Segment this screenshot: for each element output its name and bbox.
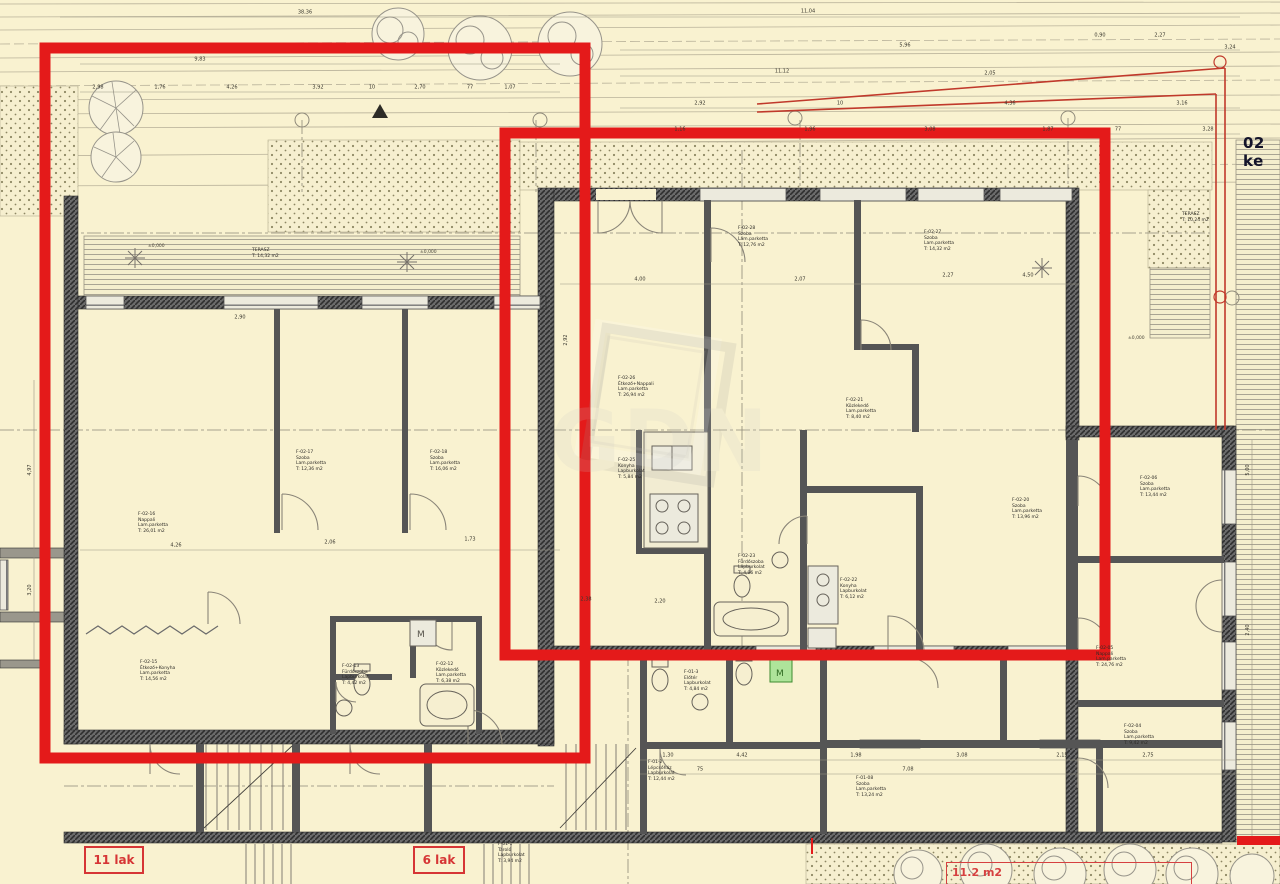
watermark: GDN: [546, 330, 806, 500]
insulation-zigzag: [86, 626, 218, 634]
unit-label-6-lak: 6 lak: [413, 846, 465, 874]
unit-label-11-lak: 11 lak: [84, 846, 144, 874]
sheet-side-text: 02 ke: [1243, 134, 1280, 170]
unit-label-11-lak-text: 11 lak: [93, 853, 134, 867]
washbasin: [336, 700, 352, 716]
benchmark-triangle: [372, 104, 388, 118]
red-corner-bar: [1237, 836, 1280, 845]
area-label: 11.2 m2: [952, 866, 1002, 879]
tree-round: [89, 81, 143, 135]
green-machine-letter: M: [776, 669, 784, 679]
bathtub: [420, 684, 474, 726]
machine-letter: M: [417, 630, 425, 640]
toilet-bowl: [354, 673, 370, 695]
watermark-text: GDN: [550, 392, 770, 492]
stove: [650, 494, 698, 542]
toilet-tank: [354, 664, 370, 671]
unit-label-6-lak-text: 6 lak: [423, 853, 456, 867]
tree-round: [91, 132, 141, 182]
floorplan-page: M M: [0, 0, 1280, 884]
